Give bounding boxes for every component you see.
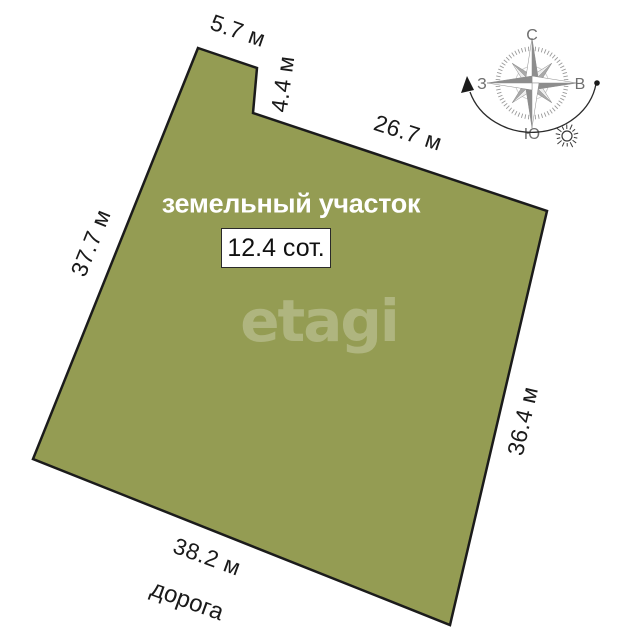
compass-south-label: Ю — [524, 126, 540, 143]
area-value: 12.4 сот. — [227, 234, 324, 263]
compass-west-label: З — [477, 76, 487, 93]
sun-path-arrowhead — [461, 76, 474, 93]
sun-path-start-dot — [594, 80, 600, 86]
compass-east-label: В — [575, 76, 586, 93]
sun-icon — [556, 125, 578, 148]
land-plot-diagram: С Ю З В 5.7 м 4.4 м 26.7 м 37.7 м 36.4 м… — [0, 0, 640, 640]
compass-north-label: С — [526, 27, 538, 44]
compass-star-icon — [487, 38, 577, 128]
plot-title: земельный участок — [162, 189, 420, 220]
area-badge: 12.4 сот. — [221, 228, 331, 268]
watermark-logo: etagi — [240, 287, 398, 355]
compass-rose: С Ю З В — [461, 27, 600, 147]
